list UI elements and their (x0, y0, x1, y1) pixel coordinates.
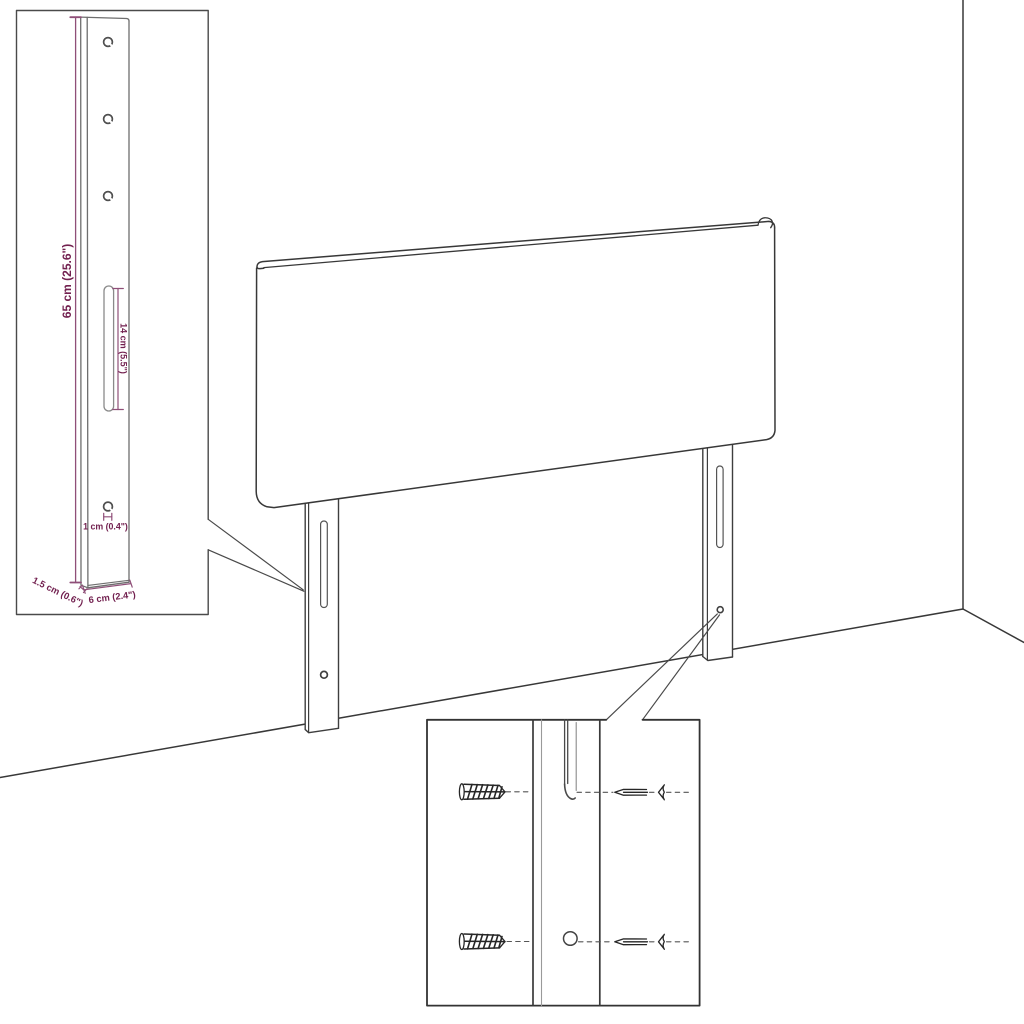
svg-text:1.5 cm (0.6"): 1.5 cm (0.6") (31, 575, 85, 608)
svg-text:1 cm (0.4"): 1 cm (0.4") (83, 522, 128, 532)
svg-text:6 cm (2.4"): 6 cm (2.4") (88, 589, 136, 605)
svg-text:14 cm (5.5"): 14 cm (5.5") (118, 323, 128, 374)
svg-text:65 cm (25.6"): 65 cm (25.6") (60, 244, 74, 318)
